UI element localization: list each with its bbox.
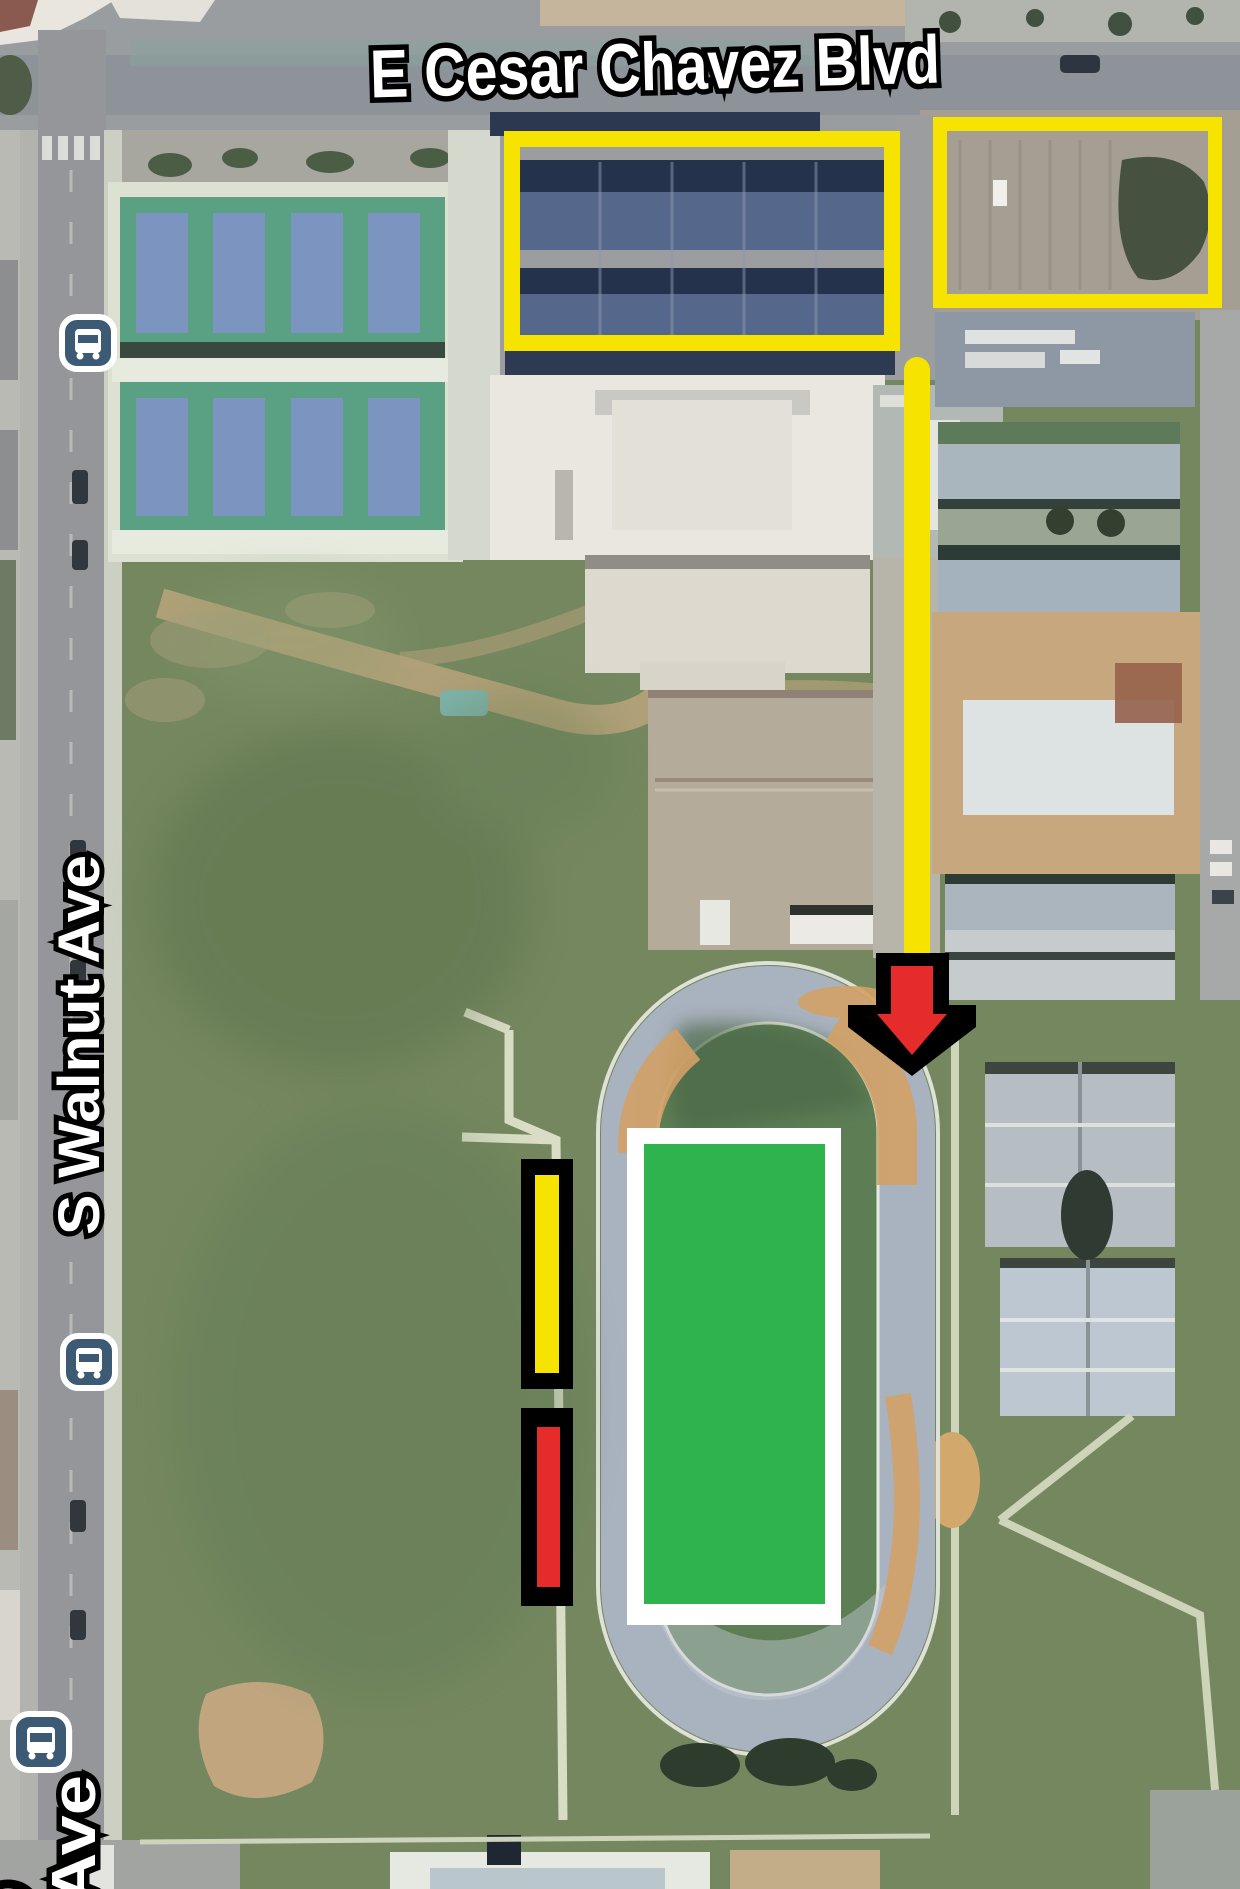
svg-text:S Walnut Ave: S Walnut Ave — [47, 855, 112, 1235]
svg-text:E Cesar Chavez Blvd: E Cesar Chavez Blvd — [369, 22, 941, 113]
svg-text:Ave: Ave — [40, 1775, 109, 1889]
